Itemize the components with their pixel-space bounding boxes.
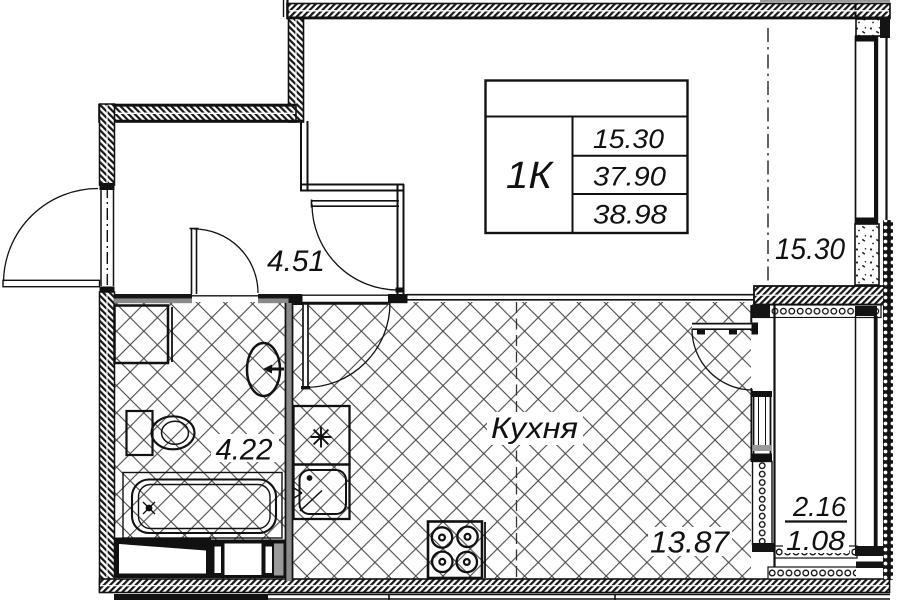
svg-text:2.16: 2.16 [792,491,846,522]
svg-text:15.30: 15.30 [593,124,664,154]
svg-text:13.87: 13.87 [650,526,730,560]
svg-text:4.22: 4.22 [216,434,273,467]
svg-text:1.08: 1.08 [786,525,845,556]
svg-text:15.30: 15.30 [775,233,845,266]
svg-text:37.90: 37.90 [593,162,666,192]
svg-text:4.51: 4.51 [267,245,325,278]
svg-text:38.98: 38.98 [593,200,667,230]
svg-text:Кухня: Кухня [491,412,578,445]
svg-text:1К: 1К [506,155,555,197]
